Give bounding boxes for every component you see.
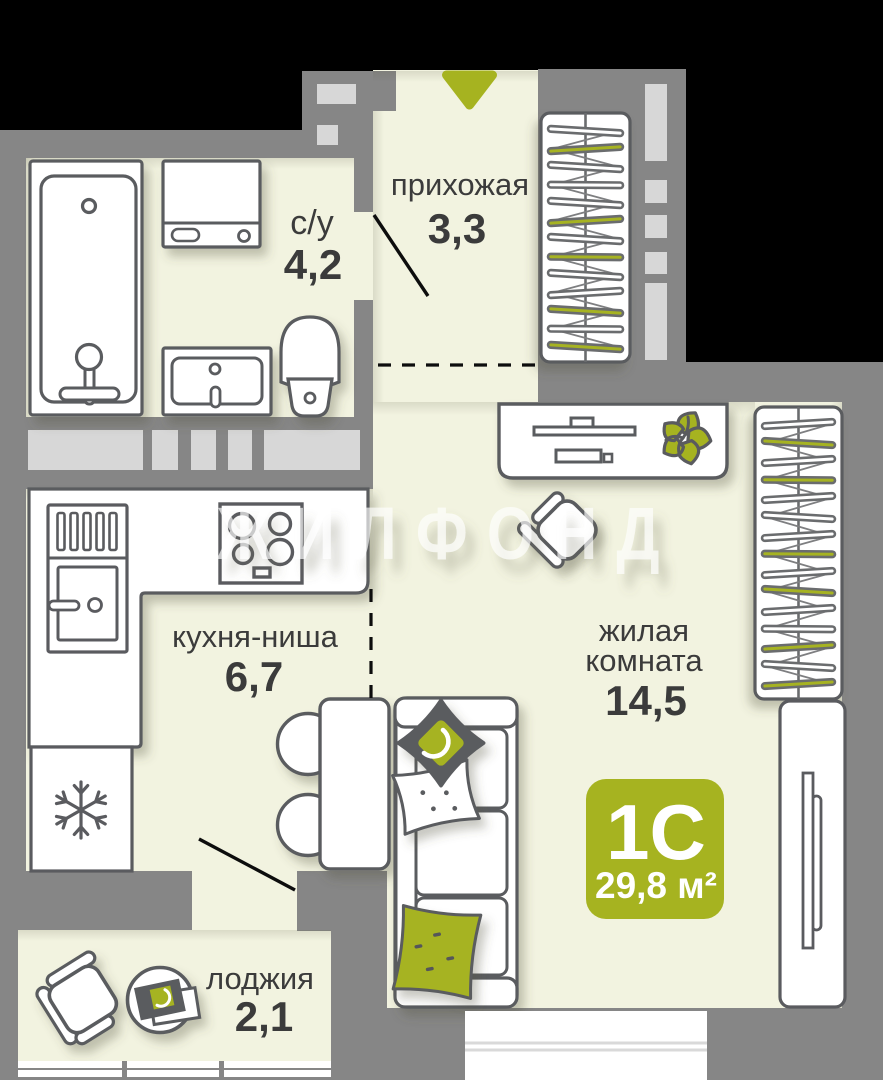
svg-text:лоджия: лоджия [206,961,314,996]
svg-text:с/у: с/у [290,204,333,242]
svg-text:прихожая: прихожая [391,167,529,202]
svg-text:ЖИЛФОНД: ЖИЛФОНД [216,493,679,575]
svg-text:3,3: 3,3 [428,205,486,252]
svg-text:6,7: 6,7 [225,653,283,700]
svg-text:кухня-ниша: кухня-ниша [172,619,338,654]
svg-text:комната: комната [585,643,703,678]
svg-text:14,5: 14,5 [605,677,687,724]
svg-text:2,1: 2,1 [235,993,293,1040]
svg-text:29,8 м²: 29,8 м² [595,865,717,906]
svg-text:4,2: 4,2 [284,241,342,288]
svg-text:1С: 1С [606,788,706,876]
